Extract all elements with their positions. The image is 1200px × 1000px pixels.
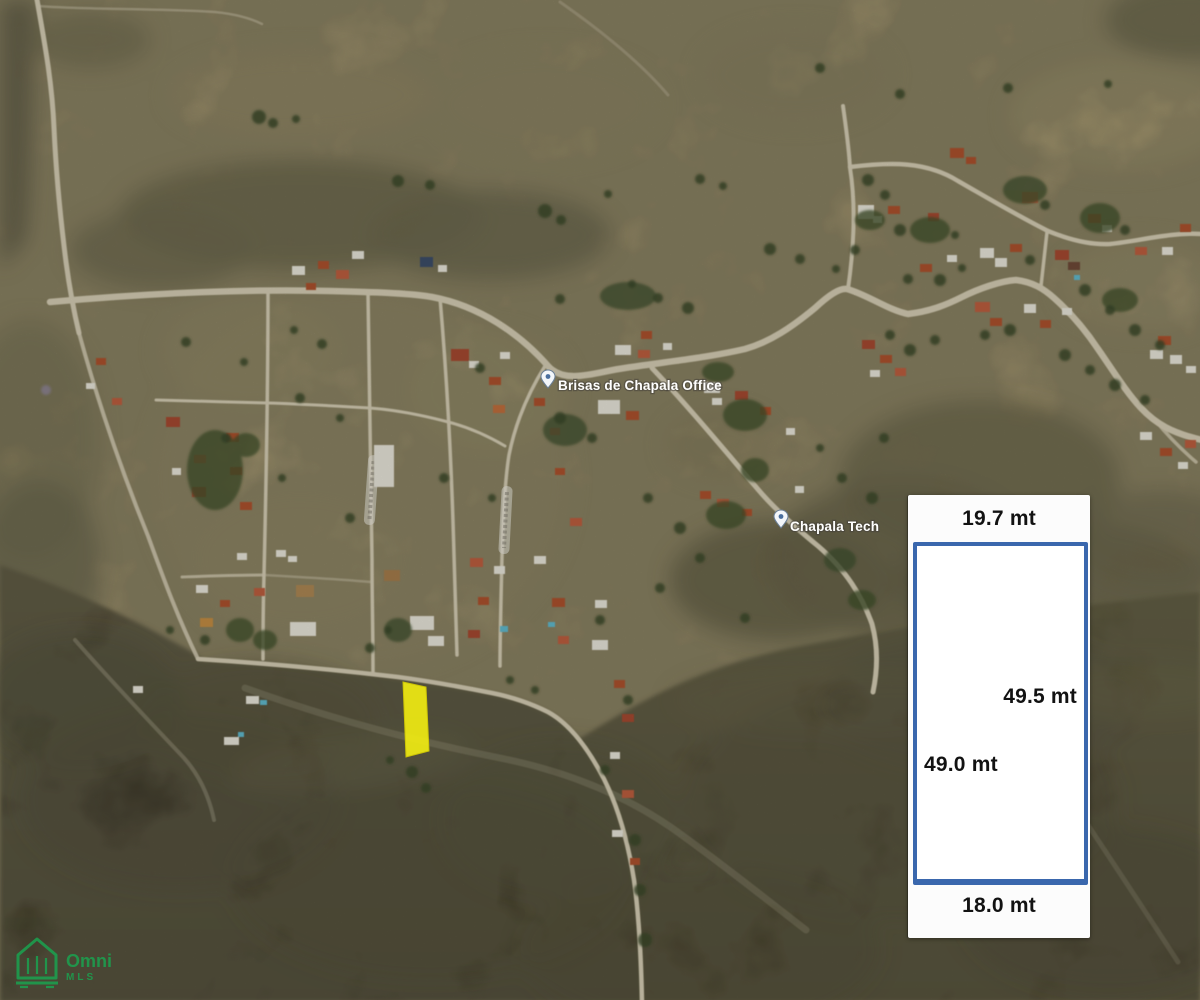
- omni-house-icon: [14, 936, 60, 990]
- watermark-omni-mls: Omni MLS: [14, 936, 112, 990]
- poi-label-tech: Chapala Tech: [790, 519, 879, 534]
- listing-image: Brisas de Chapala Office Chapala Tech 19…: [0, 0, 1200, 1000]
- lot-diagram-panel: 19.7 mt 49.5 mt 49.0 mt 18.0 mt: [908, 495, 1090, 938]
- watermark-suffix: MLS: [66, 973, 112, 983]
- dimension-right-length: 49.5 mt: [1003, 685, 1077, 709]
- dimension-left-length: 49.0 mt: [924, 753, 998, 777]
- dimension-top-width: 19.7 mt: [908, 507, 1090, 531]
- poi-label-office: Brisas de Chapala Office: [558, 378, 722, 393]
- dimension-bottom-width: 18.0 mt: [908, 894, 1090, 918]
- watermark-brand: Omni: [66, 952, 112, 970]
- highlighted-lot: [403, 682, 429, 757]
- lot-rectangle: [913, 542, 1088, 885]
